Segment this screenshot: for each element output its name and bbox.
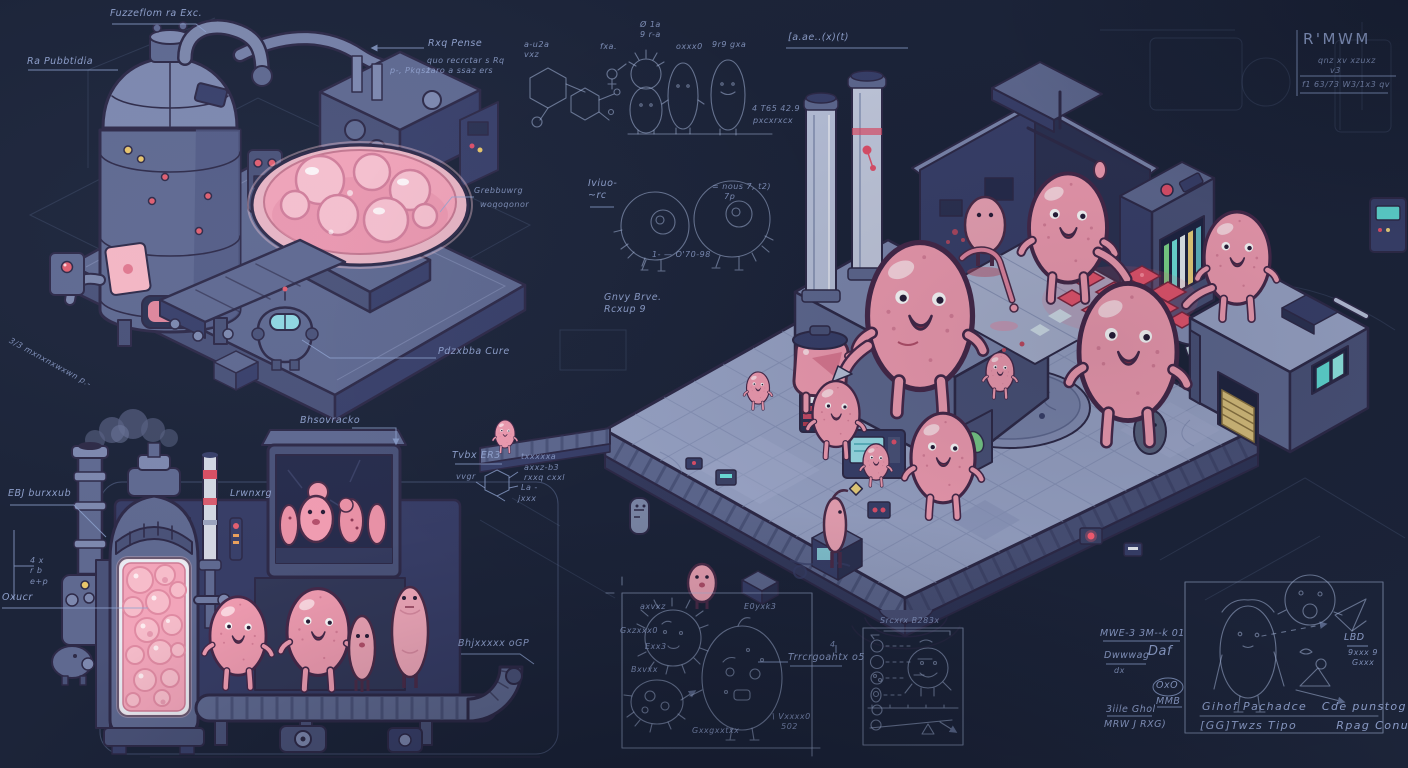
- spec-panel: [863, 628, 963, 745]
- character-turnaround-sketch: [607, 50, 772, 135]
- factory-floor-scene: [480, 62, 1406, 649]
- reactor-machine-scene: [50, 22, 525, 420]
- stone-bust: [630, 498, 649, 534]
- observation-room: [262, 430, 406, 577]
- cell-sketches: [614, 181, 773, 271]
- chemistry-sketch: [530, 68, 620, 127]
- incubator-vat: [96, 443, 204, 754]
- blueprint-illustration: Fuzzeflom ra Exc. Ra Pubbtidia Rxq Pense…: [0, 0, 1408, 768]
- behavior-panel: [1185, 575, 1383, 733]
- germ-study-panel: [606, 577, 820, 756]
- pale-blob-ground: [688, 564, 716, 609]
- artwork-canvas: [0, 0, 1408, 768]
